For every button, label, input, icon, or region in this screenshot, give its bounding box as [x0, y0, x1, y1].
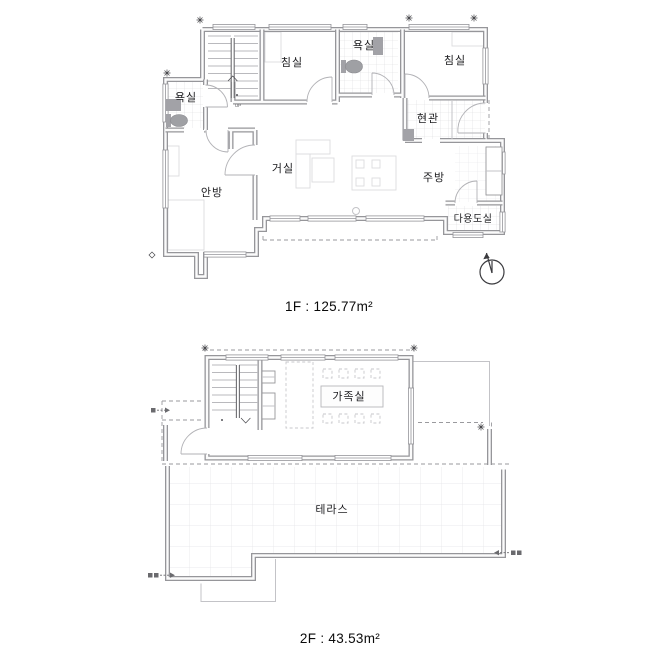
stair-direction-chevron — [241, 418, 250, 423]
living-floor-symbol — [353, 208, 360, 215]
floor2-stairs — [212, 365, 258, 423]
room-label-master: 안방 — [201, 186, 223, 199]
room-label-kitchen: 주방 — [423, 171, 445, 184]
room-label-utility: 다용도실 — [454, 213, 493, 225]
floor-plan-drawing: UP — [0, 0, 658, 662]
section-marker — [148, 573, 175, 578]
north-arrow-icon — [480, 253, 504, 284]
floor2-entry-door — [181, 428, 207, 454]
stair-direction-chevron — [228, 76, 237, 81]
room-label-bedroom2: 침실 — [444, 54, 466, 67]
room-label-terrace: 테라스 — [315, 503, 348, 516]
floor-2-plan: 가족실 테라스 2F : 43.53m² — [148, 345, 522, 647]
floor2-caption: 2F : 43.53m² — [300, 631, 380, 646]
terrace-tiles — [170, 467, 502, 577]
entrance-cabinet — [403, 129, 414, 141]
stairs-up-label: UP — [235, 103, 241, 108]
room-label-bedroom1: 침실 — [281, 56, 303, 69]
family-room-closet-dashed — [286, 362, 313, 428]
room-label-living: 거실 — [272, 162, 294, 175]
floor-1-plan: UP — [149, 15, 505, 315]
room-label-bath-left: 욕실 — [175, 91, 197, 104]
room-label-bath-top: 욕실 — [353, 39, 375, 52]
section-marker — [494, 550, 522, 555]
bath-top-toilet — [346, 60, 363, 73]
room-label-family: 가족실 — [332, 390, 365, 403]
room-label-entrance: 현관 — [417, 112, 439, 125]
floor2-roof-outline — [413, 362, 490, 427]
section-marker — [151, 408, 170, 413]
floor1-caption: 1F : 125.77m² — [285, 299, 373, 314]
floor-plan-page: UP — [0, 0, 658, 662]
floor2-windows — [226, 355, 414, 461]
bath-left-toilet — [171, 115, 188, 127]
